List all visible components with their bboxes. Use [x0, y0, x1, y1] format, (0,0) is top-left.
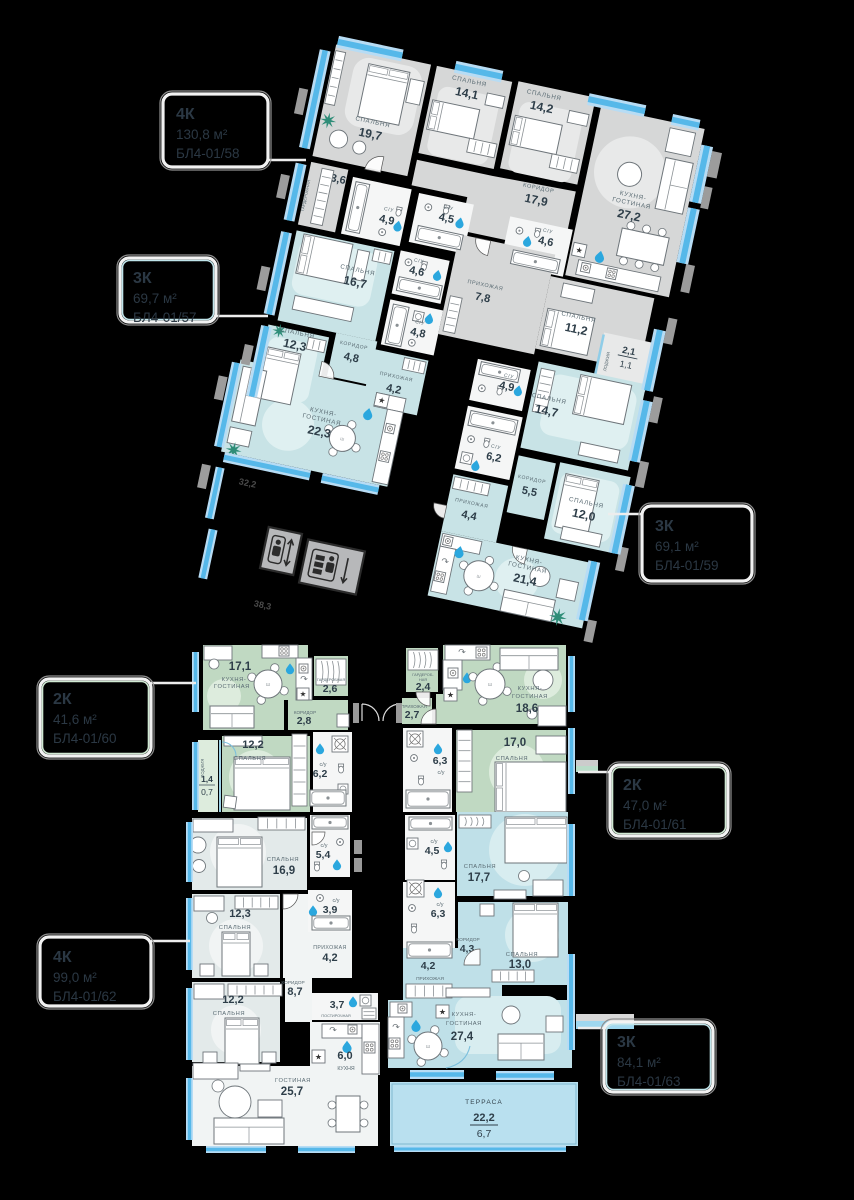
svg-text:5,4: 5,4: [316, 849, 331, 861]
svg-text:★: ★: [300, 690, 307, 699]
svg-text:6,3: 6,3: [431, 908, 446, 920]
svg-text:★: ★: [315, 1052, 322, 1061]
svg-text:22,2: 22,2: [473, 1112, 494, 1124]
svg-text:СПАЛЬНЯ: СПАЛЬНЯ: [213, 1011, 245, 1017]
svg-text:3,7: 3,7: [330, 999, 345, 1011]
svg-text:12,2: 12,2: [222, 994, 243, 1006]
svg-text:СПАЛЬНЯ: СПАЛЬНЯ: [496, 756, 528, 762]
svg-text:13,0: 13,0: [509, 959, 531, 971]
svg-text:12,3: 12,3: [229, 908, 250, 920]
svg-text:БЛ4-01/58: БЛ4-01/58: [176, 146, 240, 161]
svg-text:БЛ4-01/61: БЛ4-01/61: [623, 817, 687, 832]
svg-text:47,0 м²: 47,0 м²: [623, 798, 667, 813]
svg-text:СПАЛЬНЯ: СПАЛЬНЯ: [464, 864, 496, 870]
svg-text:99,0 м²: 99,0 м²: [53, 970, 97, 985]
svg-text:69,1 м²: 69,1 м²: [655, 539, 699, 554]
svg-text:1,4: 1,4: [201, 774, 213, 784]
svg-text:6,2: 6,2: [313, 768, 328, 780]
svg-text:БЛ4-01/62: БЛ4-01/62: [53, 989, 117, 1004]
svg-text:ГАРДЕРОБНАЯ: ГАРДЕРОБНАЯ: [317, 677, 345, 682]
svg-text:18,6: 18,6: [516, 703, 538, 715]
svg-text:ПРИХОЖАЯ: ПРИХОЖАЯ: [416, 976, 444, 982]
svg-text:ГОСТИНАЯ: ГОСТИНАЯ: [512, 694, 548, 700]
svg-text:ш: ш: [266, 682, 270, 688]
svg-text:3,9: 3,9: [323, 904, 338, 916]
svg-text:16,9: 16,9: [273, 865, 295, 877]
svg-text:КУХНЯ: КУХНЯ: [337, 1066, 355, 1072]
svg-text:4,5: 4,5: [425, 845, 440, 857]
svg-text:17,0: 17,0: [504, 737, 526, 749]
svg-text:2К: 2К: [623, 777, 642, 794]
svg-text:ТЕРРАСА: ТЕРРАСА: [465, 1099, 503, 1106]
svg-text:ГОСТИНАЯ: ГОСТИНАЯ: [275, 1078, 311, 1084]
svg-text:БЛ4-01/60: БЛ4-01/60: [53, 731, 117, 746]
svg-text:41,6 м²: 41,6 м²: [53, 712, 97, 727]
svg-text:БЛ4-01/63: БЛ4-01/63: [617, 1074, 681, 1089]
svg-text:ш: ш: [488, 682, 492, 688]
svg-text:4К: 4К: [53, 949, 72, 966]
svg-text:ПРИХОЖАЯ: ПРИХОЖАЯ: [313, 945, 346, 951]
svg-text:2К: 2К: [53, 691, 72, 708]
svg-text:12,2: 12,2: [242, 739, 263, 751]
svg-text:6,7: 6,7: [477, 1128, 492, 1140]
svg-text:3К: 3К: [133, 270, 152, 287]
svg-text:2,6: 2,6: [323, 683, 338, 695]
svg-text:↷: ↷: [329, 1025, 337, 1035]
svg-text:★: ★: [439, 1007, 446, 1016]
svg-text:↷: ↷: [300, 674, 308, 684]
svg-text:4,2: 4,2: [421, 960, 436, 972]
svg-text:6,0: 6,0: [337, 1050, 352, 1062]
svg-text:БЛ4-01/57: БЛ4-01/57: [133, 310, 197, 325]
svg-text:СПАЛЬНЯ: СПАЛЬНЯ: [267, 857, 299, 863]
svg-text:2,8: 2,8: [297, 715, 312, 727]
svg-text:★: ★: [447, 690, 454, 699]
svg-text:2,4: 2,4: [416, 681, 431, 693]
svg-text:ГОСТИНАЯ: ГОСТИНАЯ: [214, 684, 250, 690]
svg-text:0,7: 0,7: [201, 787, 213, 797]
svg-text:↷: ↷: [458, 647, 466, 657]
svg-text:ш: ш: [426, 1044, 430, 1050]
svg-text:СПАЛЬНЯ: СПАЛЬНЯ: [506, 952, 538, 958]
svg-text:8,7: 8,7: [287, 986, 302, 998]
svg-text:2,7: 2,7: [405, 709, 420, 721]
svg-text:17,1: 17,1: [229, 661, 252, 673]
svg-text:84,1 м²: 84,1 м²: [617, 1055, 661, 1070]
svg-text:3К: 3К: [655, 518, 674, 535]
svg-text:4К: 4К: [176, 106, 195, 123]
svg-text:БЛ4-01/59: БЛ4-01/59: [655, 558, 719, 573]
svg-text:3К: 3К: [617, 1034, 636, 1051]
svg-text:КУХНЯ-: КУХНЯ-: [222, 677, 247, 683]
svg-text:КУХНЯ-: КУХНЯ-: [452, 1012, 477, 1018]
svg-text:27,4: 27,4: [451, 1031, 474, 1043]
svg-text:17,7: 17,7: [468, 872, 490, 884]
svg-text:СПАЛЬНЯ: СПАЛЬНЯ: [219, 925, 251, 931]
svg-text:ПОСТИРОЧНАЯ: ПОСТИРОЧНАЯ: [321, 1014, 350, 1018]
svg-text:25,7: 25,7: [281, 1086, 303, 1098]
svg-text:КУХНЯ-: КУХНЯ-: [518, 686, 543, 692]
svg-text:с/у: с/у: [437, 770, 444, 776]
svg-text:4,2: 4,2: [322, 952, 337, 964]
svg-text:6,3: 6,3: [433, 755, 448, 767]
svg-text:СПАЛЬНЯ: СПАЛЬНЯ: [234, 756, 266, 762]
svg-text:130,8 м²: 130,8 м²: [176, 127, 228, 142]
svg-text:ГОСТИНАЯ: ГОСТИНАЯ: [446, 1021, 482, 1027]
svg-text:↷: ↷: [392, 1022, 400, 1032]
svg-text:69,7 м²: 69,7 м²: [133, 291, 177, 306]
